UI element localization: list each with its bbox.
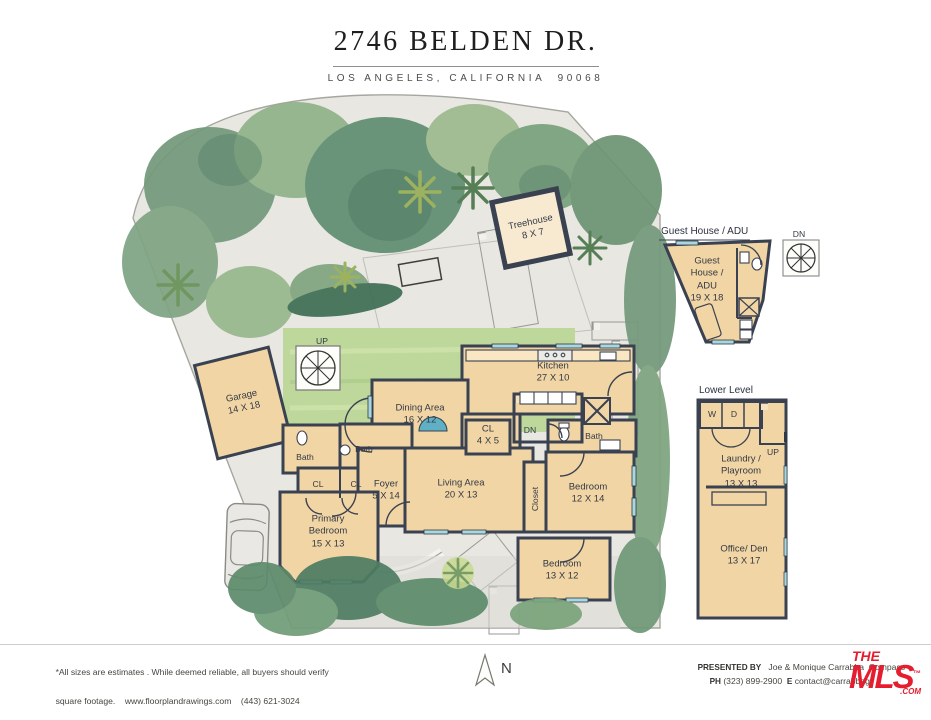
lower-level-heading: Lower Level	[699, 385, 753, 396]
label-bath-left: Bath	[296, 452, 314, 462]
label-closet: Closet	[530, 487, 540, 511]
spiral-stair-up	[296, 346, 340, 390]
label-dn-main: DN	[524, 425, 536, 435]
label-bedroom-bottom: Bedroom13 X 12	[543, 559, 582, 584]
label-cl1: CL	[313, 479, 324, 489]
label-cl-small: CL4 X 5	[477, 424, 499, 449]
north-label: N	[501, 660, 512, 677]
label-washer: W	[708, 409, 716, 419]
label-cl2: CL	[351, 479, 362, 489]
label-living: Living Area20 X 13	[431, 478, 491, 503]
footer-disclaimer: *All sizes are estimates . While deemed …	[46, 651, 366, 720]
label-office: Office/ Den13 X 17	[715, 544, 773, 569]
closet-x-box	[584, 398, 610, 424]
label-laundry: Laundry / Playroom13 X 13	[706, 453, 776, 490]
north-arrow	[476, 655, 494, 685]
label-primary: Primary Bedroom15 X 13	[292, 513, 364, 550]
label-foyer: Foyer5 X 14	[372, 479, 399, 504]
footer-divider	[0, 644, 931, 645]
label-dining: Dining Area16 X 12	[390, 403, 450, 428]
label-guest-house: Guest House / ADU19 X 18	[683, 255, 731, 304]
label-bath-right: Bath	[585, 431, 603, 441]
footer-contact: PH (323) 899-2900 E contact@carrabbagr	[700, 666, 873, 696]
label-up-main: UP	[316, 336, 328, 346]
label-dryer: D	[731, 409, 737, 419]
site-plan-canvas	[0, 0, 931, 720]
spiral-stair-dn-guest	[783, 240, 819, 276]
mls-logo: THE MLS™ .COM	[849, 649, 927, 696]
lower-level	[698, 400, 787, 618]
guest-house-heading: Guest House / ADU	[661, 226, 748, 237]
label-kitchen: Kitchen27 X 10	[537, 361, 570, 386]
label-bath-mid: Bath	[355, 444, 373, 454]
label-dn-guest: DN	[793, 229, 805, 239]
floorplan-page: 2746 BELDEN DR. LOS ANGELES, CALIFORNIA …	[0, 0, 931, 720]
label-bedroom-right: Bedroom12 X 14	[569, 482, 608, 507]
